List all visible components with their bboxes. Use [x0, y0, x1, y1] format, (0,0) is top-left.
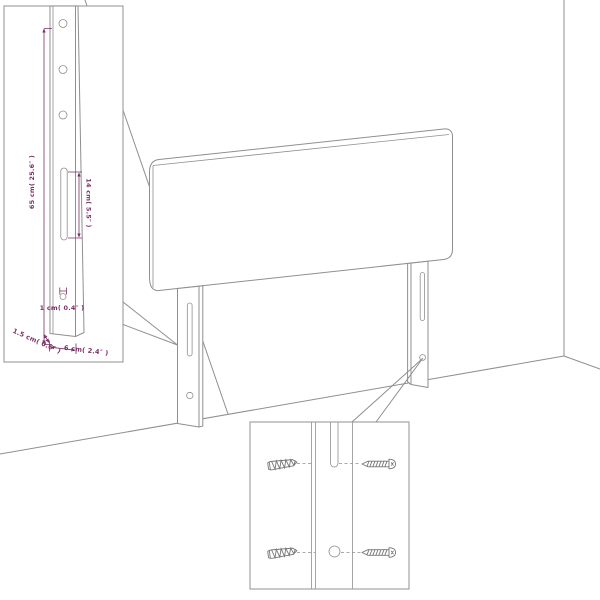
left-leg [178, 286, 203, 427]
assembly-diagram: 65 cm( 25.6″ ) 14 cm( 5.5″ ) 1 cm( 0.4″ … [0, 0, 600, 600]
left-leg-side [199, 286, 203, 427]
dim-height-label: 65 cm( 25.6″ ) [28, 155, 36, 209]
right-leg-side [408, 263, 411, 384]
headboard-panel [150, 129, 453, 291]
leg-detail-front [50, 6, 76, 337]
dim-slot-label: 14 cm( 5.5″ ) [85, 178, 93, 227]
floor-edge-right [564, 356, 600, 369]
screw-detail-inset [250, 422, 409, 589]
left-leg-front [178, 286, 200, 427]
right-leg-front [411, 261, 428, 387]
callout-wedge-right [352, 359, 423, 423]
leg-detail-drawing [50, 6, 84, 337]
headboard-outline [150, 129, 453, 291]
callout-wedge-left [123, 302, 178, 345]
right-leg [408, 261, 428, 387]
leg-dimension-inset: 65 cm( 25.6″ ) 14 cm( 5.5″ ) 1 cm( 0.4″ … [4, 6, 123, 362]
dim-hole-label: 1 cm( 0.4″ ) [40, 304, 85, 312]
screw-inset-frame [250, 422, 409, 589]
